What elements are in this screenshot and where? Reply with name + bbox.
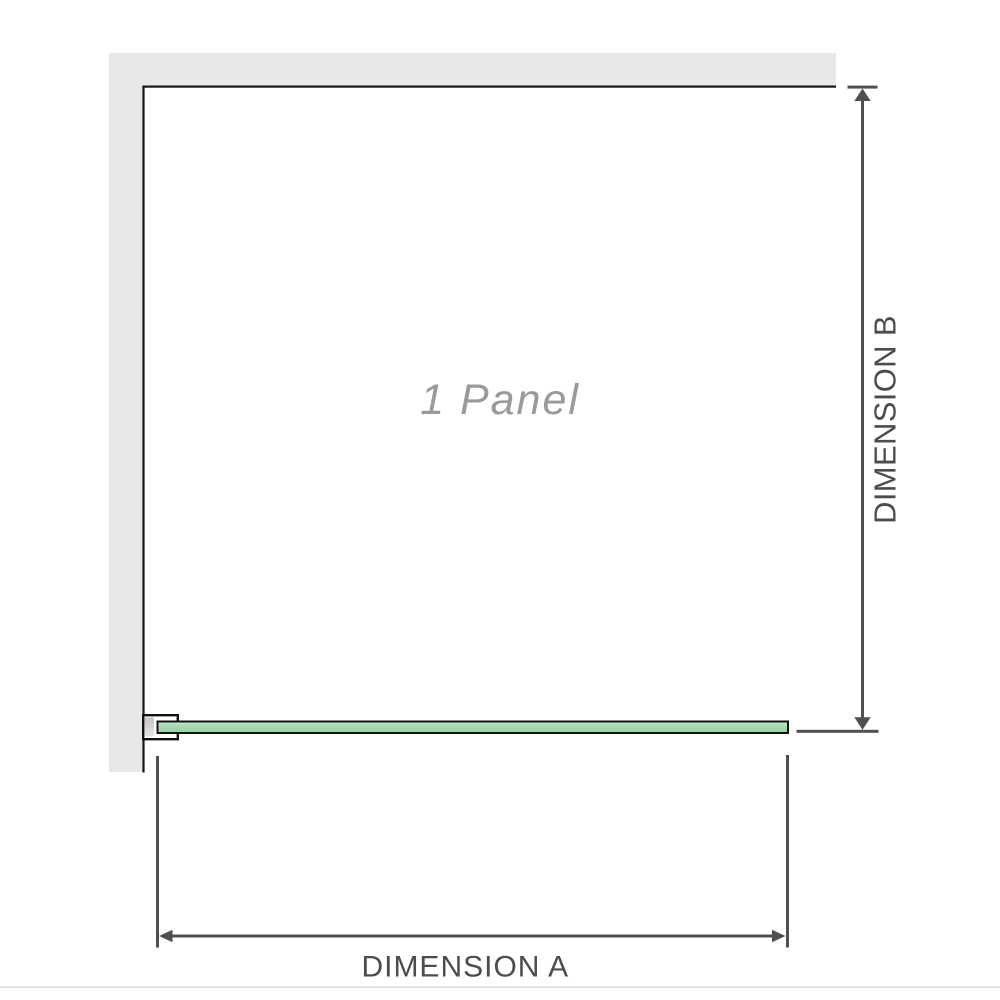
svg-text:DIMENSION B: DIMENSION B [868,315,903,524]
svg-text:1 Panel: 1 Panel [420,376,580,424]
svg-text:DIMENSION A: DIMENSION A [361,951,569,984]
